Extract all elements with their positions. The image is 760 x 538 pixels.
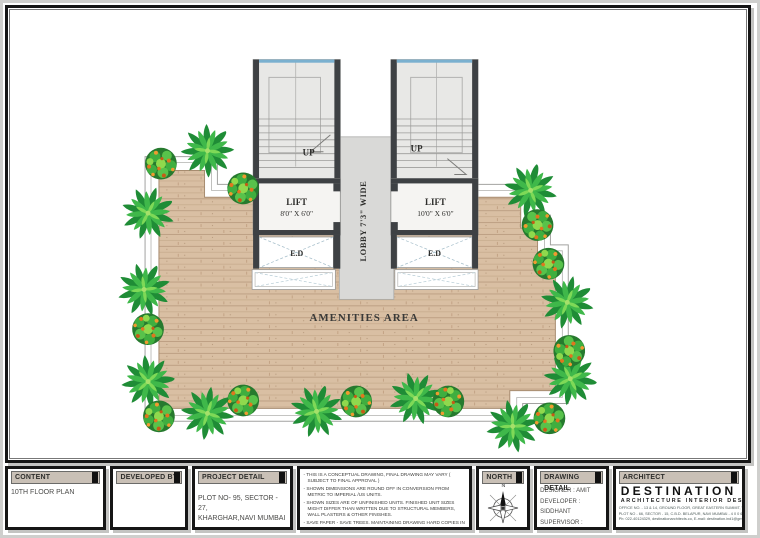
lift-left: LIFT 8'0" X 6'0" [253, 178, 340, 234]
north-cell: NORTH N [476, 466, 530, 530]
header-end-block [92, 472, 98, 483]
staircase-left: UP [253, 60, 340, 193]
project-address-line1: PLOT NO- 95, SECTOR - 27, [198, 494, 287, 514]
architect-header: ARCHITECT [619, 471, 739, 484]
header-end-block [516, 472, 522, 483]
north-header: NORTH [482, 471, 524, 484]
architect-cell: ARCHITECT DESTINATION ARCHITECTURE INTER… [613, 466, 745, 530]
lift-right-size: 10'0" X 6'0" [417, 209, 453, 218]
architect-tagline: ARCHITECTURE INTERIOR DESIGNS [621, 498, 745, 504]
ed-left-label: E.D [290, 249, 303, 258]
electrical-duct-left: E.D [253, 235, 340, 269]
header-end-block [174, 472, 180, 483]
project-address-line2: KHARGHAR,NAVI MUMBAI [198, 514, 287, 524]
project-detail-header: PROJECT DETAIL [198, 471, 287, 484]
fruit-bush-icon [432, 386, 464, 418]
notes-cell: - THIS IS A CONCEPTUAL DRAWING, FINAL DR… [297, 466, 472, 530]
ed-right-label: E.D [428, 249, 441, 258]
architect-header-label: ARCHITECT [623, 474, 665, 481]
drawing-detail-cell: DRAWING DETAIL DESIGNER : AMIT DEVELOPER… [534, 466, 609, 530]
lift-right: LIFT 10'0" X 6'0" [391, 178, 478, 234]
staircase-right: UP [391, 60, 478, 193]
architect-brand-name: DESTINATION [621, 485, 745, 497]
developed-by-header: DEVELOPED BY [116, 471, 182, 484]
developer-line: DEVELOPER : SIDDHANT [540, 497, 603, 518]
note-line: - SAVE PAPER - SAVE TREES. MAINTAINING D… [303, 520, 466, 530]
header-end-block [731, 472, 737, 483]
drawing-sheet: UP UP LOBBY 7'3" WIDE [0, 0, 760, 538]
drawing-detail-header: DRAWING DETAIL [540, 471, 603, 484]
project-detail-cell: PROJECT DETAIL PLOT NO- 95, SECTOR - 27,… [192, 466, 293, 530]
planter-left [252, 270, 335, 290]
header-end-block [279, 472, 285, 483]
planter-right [395, 270, 478, 290]
content-header: CONTENT [11, 471, 100, 484]
drawing-frame: UP UP LOBBY 7'3" WIDE [5, 5, 751, 463]
lift-left-name: LIFT [286, 197, 307, 207]
note-line: - SHOWN DIMENSIONS ARE ROUND OFF IN CONV… [303, 486, 466, 498]
stair-left-up-label: UP [303, 148, 315, 158]
stair-right-up-label: UP [411, 144, 423, 154]
amenities-area-label: AMENITIES AREA [309, 312, 418, 324]
lift-left-size: 8'0" X 6'0" [280, 209, 313, 218]
note-line: - SHOWN SIZES ARE OF UNFINISHED UNITS. F… [303, 500, 466, 519]
fruit-bush-icon [145, 148, 177, 180]
north-compass-icon [483, 489, 523, 527]
electrical-duct-right: E.D [391, 235, 478, 269]
content-value: 10TH FLOOR PLAN [11, 488, 100, 499]
date-line: DATE : 10 - 02 - 2023 [540, 528, 603, 530]
floor-plan: UP UP LOBBY 7'3" WIDE [8, 8, 742, 454]
architect-address-line3: Ph: 022-40124329, destinationarchitects.… [619, 517, 739, 523]
title-block: CONTENT 10TH FLOOR PLAN DEVELOPED BY PRO… [5, 466, 745, 530]
lift-right-name: LIFT [425, 197, 446, 207]
developed-by-header-label: DEVELOPED BY [120, 474, 177, 481]
note-line: - THIS IS A CONCEPTUAL DRAWING, FINAL DR… [303, 472, 466, 484]
architect-address-line1: OFFICE NO. - 13 & 14, GROUND FLOOR, GREA… [619, 506, 739, 512]
developed-by-cell: DEVELOPED BY [110, 466, 188, 530]
content-header-label: CONTENT [15, 474, 50, 481]
north-header-label: NORTH [486, 474, 512, 481]
supervisor-line: SUPERVISOR : [540, 518, 603, 529]
project-detail-header-label: PROJECT DETAIL [202, 474, 265, 481]
lobby-label: LOBBY 7'3" WIDE [358, 181, 368, 262]
content-cell: CONTENT 10TH FLOOR PLAN [5, 466, 106, 530]
header-end-block [595, 472, 601, 483]
